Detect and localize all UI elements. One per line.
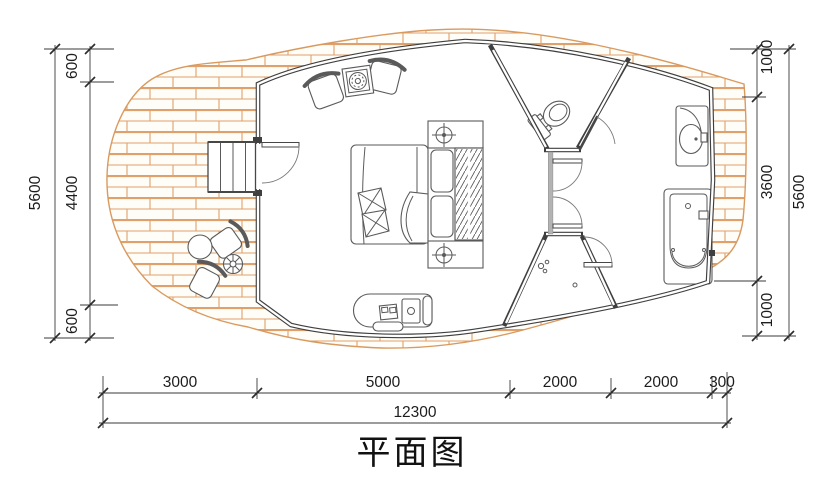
dimension-bottom: 3000 5000 2000 2000 300 12300 [98,372,735,428]
dim-right-part-2: 1000 [759,292,776,327]
dim-right-total: 5600 [791,174,808,209]
dim-bottom-total: 12300 [393,404,436,421]
dimension-left: 5600 600 4400 600 [27,44,118,343]
dim-right-part-1: 3600 [759,164,776,199]
dim-bottom-part-1: 5000 [366,374,401,391]
side-table [342,65,374,97]
dim-left-part-2: 600 [64,308,81,334]
dim-bottom-part-0: 3000 [163,374,198,391]
counter-sink [402,299,420,323]
potted-plant-icon [223,254,243,274]
dim-left-part-0: 600 [64,53,81,79]
headboard-cushion [431,150,453,192]
tub-faucet-icon [699,211,708,219]
headboard-cushion [431,196,453,237]
drawing-title: 平面图 [357,434,468,472]
basin-faucet-icon [701,133,707,142]
floor-plan-page: 5600 600 4400 600 1000 3600 1000 5600 30… [0,0,837,496]
dim-bottom-part-2: 2000 [543,374,578,391]
bed [351,145,428,244]
dim-bottom-part-3: 2000 [644,374,679,391]
dim-left-total: 5600 [27,175,44,210]
entry-stairs [208,142,256,192]
floor-plan-drawing: 5600 600 4400 600 1000 3600 1000 5600 30… [0,0,837,496]
bathtub [664,189,712,284]
wardrobe [455,148,483,240]
washbasin [676,106,708,166]
outdoor-table [188,235,212,259]
corridor-frame [548,152,553,234]
dim-left-part-1: 4400 [64,175,81,210]
wall-fixture [709,250,715,256]
island-counter [354,294,432,331]
dim-right-part-0: 1000 [759,39,776,74]
dim-bottom-part-4: 300 [709,374,735,391]
